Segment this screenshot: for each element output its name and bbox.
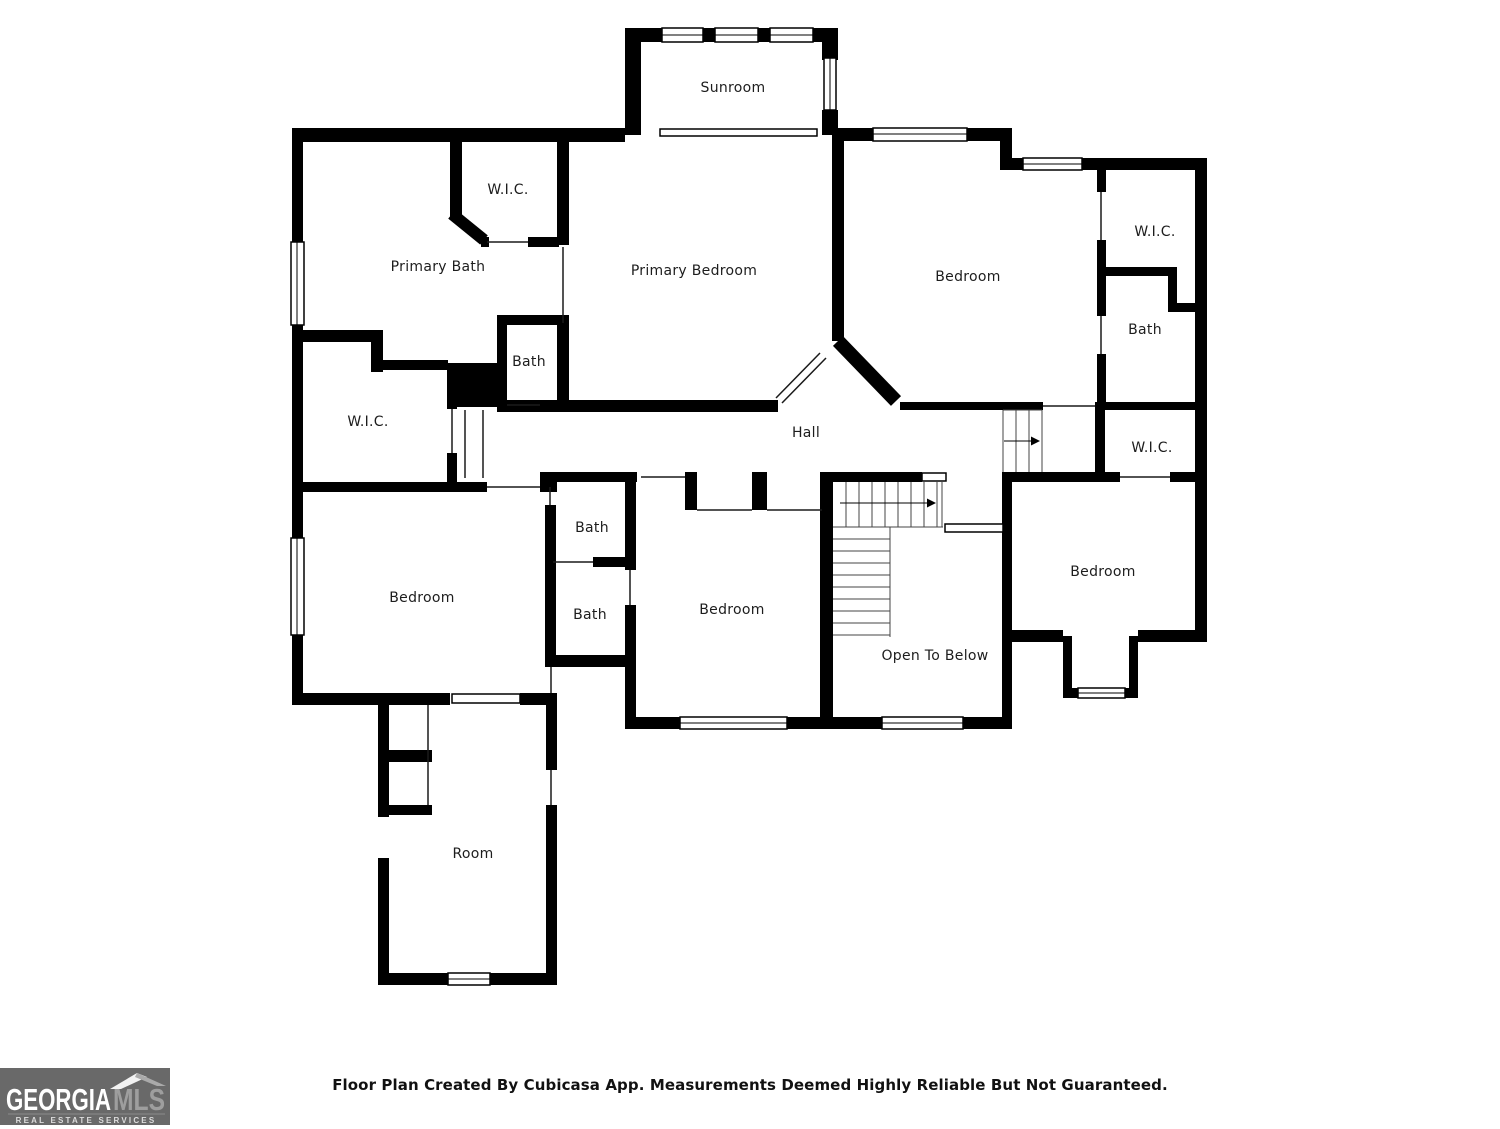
top-right-window [1023, 158, 1082, 170]
room-label-bath-lower: Bath [573, 607, 607, 623]
logo-brand-suffix-text: MLS [113, 1082, 165, 1117]
room-label-primary-bedroom: Primary Bedroom [631, 263, 757, 279]
room-label-bath-upper: Bath [575, 520, 609, 536]
stair-railing [922, 473, 946, 481]
room-label-bedroom-middle: Bedroom [699, 602, 764, 618]
sunroom-window [662, 28, 703, 42]
room-label-sunroom: Sunroom [701, 80, 766, 96]
bay-window [1078, 688, 1125, 698]
landing-railing [945, 524, 1003, 532]
left-wall-window-lower [291, 538, 304, 635]
room-label-wic-left: W.I.C. [347, 414, 388, 430]
room-label-open-to-below: Open To Below [881, 648, 988, 664]
stair-direction-arrow [927, 499, 936, 508]
bottom-window-left [680, 717, 787, 729]
room-label-bath-top-right: Bath [1128, 322, 1162, 338]
room-label-bedroom-right: Bedroom [1070, 564, 1135, 580]
room-label-primary-bath: Primary Bath [391, 259, 486, 275]
walls [292, 28, 1207, 985]
room-label-bath-hall: Bath [512, 354, 546, 370]
room-label-bedroom-left: Bedroom [389, 590, 454, 606]
floor-plan-canvas: Sunroom W.I.C. Primary Bath Primary Bedr… [0, 0, 1500, 1125]
room-label-room: Room [452, 846, 493, 862]
stairs-upper-flight [1003, 410, 1042, 472]
georgia-mls-logo: GEORGIA MLS REAL ESTATE SERVICES [0, 1068, 170, 1125]
room-labels: Sunroom W.I.C. Primary Bath Primary Bedr… [347, 80, 1175, 862]
disclaimer-text: Floor Plan Created By Cubicasa App. Meas… [0, 1076, 1500, 1094]
room-label-hall: Hall [792, 425, 820, 441]
sunroom-opening [660, 129, 817, 136]
sunroom-side-window [824, 58, 836, 110]
room-label-wic-primary: W.I.C. [487, 182, 528, 198]
sunroom-window [770, 28, 813, 42]
room-label-bedroom-top-right: Bedroom [935, 269, 1000, 285]
georgia-mls-logo-art: GEORGIA MLS REAL ESTATE SERVICES [0, 1068, 170, 1125]
sunroom-window [715, 28, 758, 42]
top-wall-window [873, 128, 967, 141]
stair-direction-arrow [1031, 437, 1040, 446]
room-window [448, 973, 490, 985]
floor-plan-page: Sunroom W.I.C. Primary Bath Primary Bedr… [0, 0, 1500, 1125]
logo-tagline-text: REAL ESTATE SERVICES [16, 1116, 157, 1125]
room-label-wic-top-right: W.I.C. [1134, 224, 1175, 240]
left-wall-window-upper [291, 242, 304, 325]
door-markers [428, 192, 1170, 805]
room-label-wic-right: W.I.C. [1131, 440, 1172, 456]
stairs-main-flight [833, 482, 943, 637]
bottom-window-right [882, 717, 963, 729]
room-top-opening [452, 694, 520, 703]
windows [291, 28, 1125, 985]
logo-brand-text: GEORGIA [6, 1082, 111, 1117]
